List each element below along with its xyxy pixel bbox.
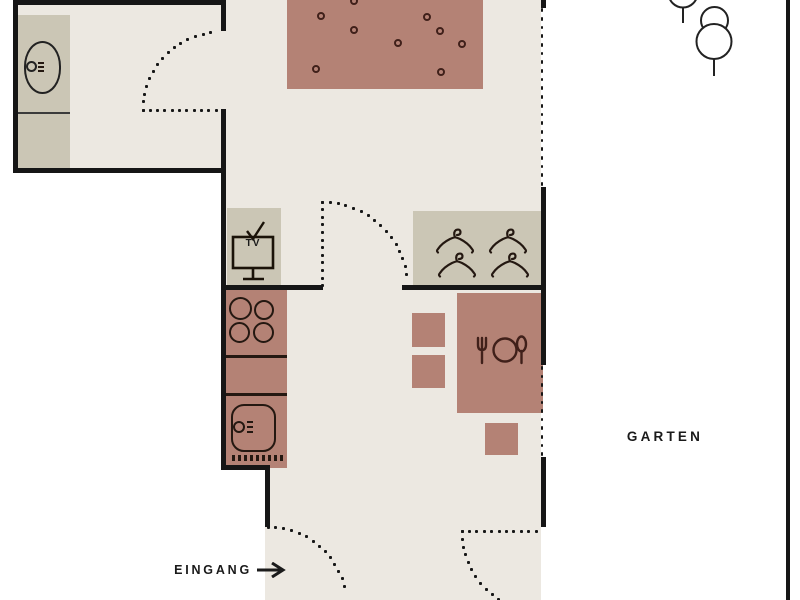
faucet-spray bbox=[247, 421, 253, 423]
wall-segment bbox=[13, 0, 18, 173]
place-setting-icon bbox=[457, 293, 543, 413]
hangers-icon bbox=[413, 211, 543, 286]
wall-segment bbox=[541, 0, 546, 8]
wall-segment bbox=[13, 0, 226, 5]
kitchen-divider bbox=[225, 393, 287, 396]
floor-plan: TV bbox=[0, 0, 800, 600]
stove-burner-icon bbox=[253, 322, 274, 343]
wall-segment bbox=[221, 0, 226, 31]
bathroom-counter-divider bbox=[18, 112, 70, 114]
faucet-spray bbox=[247, 431, 253, 433]
rug bbox=[287, 0, 483, 89]
wall-segment bbox=[221, 285, 323, 290]
chair bbox=[412, 355, 445, 388]
corridor-floor bbox=[270, 468, 541, 600]
kitchen-faucet-icon bbox=[233, 421, 245, 433]
entrance-label: EINGANG bbox=[168, 563, 252, 577]
faucet-spray bbox=[247, 426, 253, 428]
faucet-spray bbox=[38, 70, 44, 72]
chair bbox=[412, 313, 445, 347]
faucet-spray bbox=[38, 66, 44, 68]
wall-segment bbox=[13, 168, 226, 173]
entrance-arrow-icon bbox=[256, 562, 292, 578]
garden-boundary-wall bbox=[786, 0, 790, 600]
chair bbox=[485, 423, 518, 455]
trees-icon bbox=[610, 0, 790, 90]
wall-segment bbox=[541, 457, 546, 527]
stove-burner-icon bbox=[229, 322, 250, 343]
kitchen-divider bbox=[225, 355, 287, 358]
faucet-spray bbox=[38, 62, 44, 64]
wall-segment bbox=[541, 187, 546, 365]
washbasin-faucet-icon bbox=[26, 61, 37, 72]
tv-label: TV bbox=[233, 238, 273, 249]
garden-label: GARTEN bbox=[626, 429, 704, 444]
stove-burner-icon bbox=[254, 300, 274, 320]
wall-segment bbox=[221, 465, 270, 470]
stove-burner-icon bbox=[229, 297, 252, 320]
wall-segment bbox=[265, 465, 270, 527]
wall-segment bbox=[402, 285, 545, 290]
